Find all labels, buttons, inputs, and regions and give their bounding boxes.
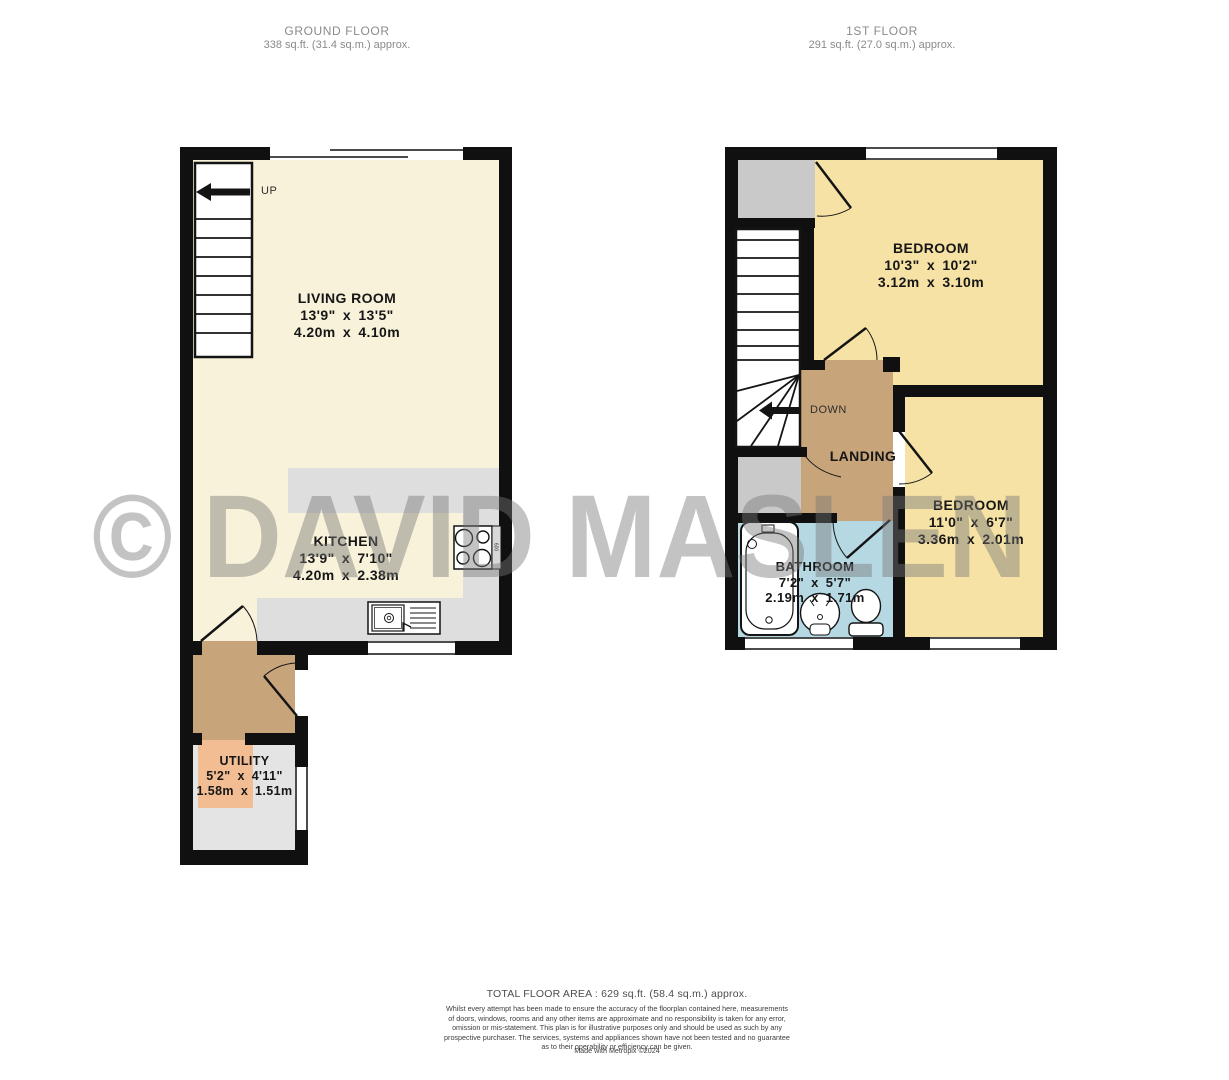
living-room-label: LIVING ROOM 13'9" x 13'5" 4.20m x 4.10m xyxy=(247,290,447,341)
hob-size-label: 600 xyxy=(493,543,499,552)
room-dims-imperial: 5'2" x 4'11" xyxy=(162,769,327,784)
disclaimer-text: Whilst every attempt has been made to en… xyxy=(267,1004,967,1052)
room-name: UTILITY xyxy=(162,754,327,769)
front-door xyxy=(264,663,297,716)
made-with-credit: Made with Metropix ©2024 xyxy=(317,1046,917,1055)
room-dims-imperial: 10'3" x 10'2" xyxy=(831,257,1031,274)
staircase-ground-floor xyxy=(195,163,252,357)
room-dims-imperial: 13'9" x 13'5" xyxy=(247,307,447,324)
room-name: BEDROOM xyxy=(831,240,1031,257)
room-dims-metric: 4.20m x 4.10m xyxy=(247,324,447,341)
room-dims-metric: 3.36m x 2.01m xyxy=(871,531,1071,548)
bathroom-label: BATHROOM 7'2" x 5'7" 2.19m x 1.71m xyxy=(725,559,905,606)
kitchen-label: KITCHEN 13'9" x 7'10" 4.20m x 2.38m xyxy=(246,533,446,584)
room-name: LANDING xyxy=(813,448,913,465)
closet-door xyxy=(816,162,851,216)
stairs-down-label: DOWN xyxy=(810,404,847,416)
room-name: LIVING ROOM xyxy=(247,290,447,307)
room-dims-imperial: 7'2" x 5'7" xyxy=(725,575,905,591)
stairs-up-label: UP xyxy=(261,185,277,197)
landing-label: LANDING xyxy=(813,448,913,465)
room-dims-imperial: 13'9" x 7'10" xyxy=(246,550,446,567)
room-dims-imperial: 11'0" x 6'7" xyxy=(871,514,1071,531)
kitchen-sink-icon xyxy=(368,602,440,634)
living-room-door xyxy=(201,606,257,641)
staircase-first-floor xyxy=(736,229,800,447)
utility-label: UTILITY 5'2" x 4'11" 1.58m x 1.51m xyxy=(162,754,327,799)
room-dims-metric: 4.20m x 2.38m xyxy=(246,567,446,584)
bedroom-1-door xyxy=(824,328,877,360)
room-dims-metric: 3.12m x 3.10m xyxy=(831,274,1031,291)
room-name: BATHROOM xyxy=(725,559,905,575)
hob-icon: 600 xyxy=(454,526,501,569)
total-floor-area: TOTAL FLOOR AREA : 629 sq.ft. (58.4 sq.m… xyxy=(317,988,917,1000)
room-dims-metric: 1.58m x 1.51m xyxy=(162,784,327,799)
room-name: KITCHEN xyxy=(246,533,446,550)
bedroom-1-label: BEDROOM 10'3" x 10'2" 3.12m x 3.10m xyxy=(831,240,1031,291)
floorplan-page: GROUND FLOOR 338 sq.ft. (31.4 sq.m.) app… xyxy=(0,0,1229,1080)
room-dims-metric: 2.19m x 1.71m xyxy=(725,590,905,606)
room-name: BEDROOM xyxy=(871,497,1071,514)
bedroom-2-label: BEDROOM 11'0" x 6'7" 3.36m x 2.01m xyxy=(871,497,1071,548)
